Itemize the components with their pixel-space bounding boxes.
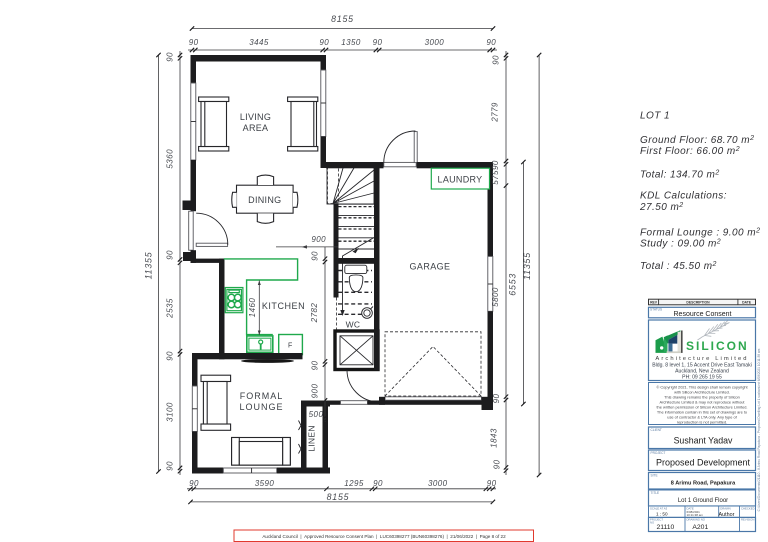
svg-text:Proposed Development: Proposed Development bbox=[656, 458, 751, 468]
svg-text:3100: 3100 bbox=[166, 402, 175, 422]
svg-text:F: F bbox=[288, 342, 292, 349]
svg-text:3000: 3000 bbox=[425, 38, 445, 47]
svg-text:LOUNGE: LOUNGE bbox=[239, 402, 283, 412]
svg-text:90: 90 bbox=[310, 251, 319, 261]
svg-text:10:11:38 am: 10:11:38 am bbox=[687, 513, 704, 517]
svg-text:Resource Consent: Resource Consent bbox=[674, 311, 732, 318]
svg-text:Study : 09.00 m2: Study : 09.00 m2 bbox=[640, 239, 721, 250]
svg-text:27.50 m2: 27.50 m2 bbox=[639, 202, 684, 213]
svg-text:11355: 11355 bbox=[522, 252, 532, 280]
svg-text:8155: 8155 bbox=[327, 492, 350, 502]
svg-text:90: 90 bbox=[311, 361, 320, 371]
svg-text:90: 90 bbox=[166, 250, 175, 260]
svg-text:DRAWING NO: DRAWING NO bbox=[687, 518, 706, 522]
svg-text:KITCHEN: KITCHEN bbox=[262, 301, 305, 311]
svg-text:WC: WC bbox=[346, 320, 361, 330]
svg-text:Total : 45.50 m2: Total : 45.50 m2 bbox=[640, 261, 717, 272]
svg-text:Ground Floor: 68.70 m2: Ground Floor: 68.70 m2 bbox=[640, 135, 754, 146]
svg-text:3445: 3445 bbox=[249, 38, 269, 47]
svg-text:DRAWN: DRAWN bbox=[720, 506, 730, 510]
svg-text:STATUS: STATUS bbox=[650, 308, 662, 312]
svg-text:LINEN: LINEN bbox=[307, 425, 317, 452]
svg-text:LAUNDRY: LAUNDRY bbox=[438, 175, 483, 185]
svg-text:First Floor: 66.00 m2: First Floor: 66.00 m2 bbox=[640, 146, 740, 157]
svg-text:KDL Calculations:: KDL Calculations: bbox=[640, 191, 727, 202]
svg-text:5800: 5800 bbox=[491, 287, 500, 307]
svg-text:90: 90 bbox=[319, 38, 329, 47]
svg-text:CLIENT: CLIENT bbox=[651, 428, 662, 432]
svg-text:90: 90 bbox=[166, 351, 175, 361]
svg-text:8 Arimu Road, Papakura: 8 Arimu Road, Papakura bbox=[671, 481, 736, 487]
svg-text:GARAGE: GARAGE bbox=[410, 262, 451, 272]
svg-text:DATE: DATE bbox=[742, 300, 752, 304]
svg-text:500: 500 bbox=[309, 410, 324, 419]
svg-text:90: 90 bbox=[189, 479, 199, 488]
svg-text:FORMAL: FORMAL bbox=[240, 391, 284, 401]
svg-text:3000: 3000 bbox=[428, 479, 448, 488]
svg-text:90: 90 bbox=[166, 52, 175, 62]
svg-text:90: 90 bbox=[492, 394, 501, 404]
svg-text:2535: 2535 bbox=[166, 298, 175, 319]
svg-text:LIVING: LIVING bbox=[240, 112, 271, 122]
svg-text:90: 90 bbox=[493, 460, 502, 470]
svg-text:C:\Users\Documents\21110 - 8 A: C:\Users\Documents\21110 - 8 Arimu Road … bbox=[757, 348, 761, 511]
svg-text:LOT 1: LOT 1 bbox=[640, 111, 670, 122]
svg-text:90: 90 bbox=[189, 38, 199, 47]
svg-text:900: 900 bbox=[311, 235, 326, 244]
svg-text:3590: 3590 bbox=[255, 479, 275, 488]
svg-text:Lot 1 Ground Floor: Lot 1 Ground Floor bbox=[678, 498, 728, 504]
svg-text:PROJECT: PROJECT bbox=[651, 451, 666, 455]
svg-text:Sushant Yadav: Sushant Yadav bbox=[674, 436, 733, 446]
svg-text:Total: 134.70 m2: Total: 134.70 m2 bbox=[640, 169, 720, 180]
svg-text:Formal Lounge : 9.00 m2: Formal Lounge : 9.00 m2 bbox=[640, 228, 760, 239]
svg-text:90: 90 bbox=[166, 461, 175, 471]
svg-text:900: 900 bbox=[311, 384, 320, 399]
svg-text:SCALE AT A3: SCALE AT A3 bbox=[650, 506, 668, 510]
svg-text:90: 90 bbox=[373, 479, 383, 488]
svg-text:1 : 50: 1 : 50 bbox=[656, 511, 668, 516]
svg-text:AREA: AREA bbox=[243, 123, 269, 133]
svg-text:90: 90 bbox=[487, 479, 497, 488]
svg-text:TITLE: TITLE bbox=[651, 491, 660, 495]
svg-text:1295: 1295 bbox=[344, 479, 364, 488]
svg-text:REV: REV bbox=[650, 300, 658, 304]
svg-text:CHECKED: CHECKED bbox=[741, 506, 755, 510]
svg-text:8155: 8155 bbox=[331, 14, 354, 24]
svg-text:DINING: DINING bbox=[248, 195, 281, 205]
svg-text:21110: 21110 bbox=[656, 524, 674, 531]
svg-text:reproduction is not permitted.: reproduction is not permitted. bbox=[677, 420, 727, 425]
svg-text:90: 90 bbox=[486, 38, 496, 47]
svg-text:Auckland Council | Approved: Auckland Council | Approved Resource Con… bbox=[262, 534, 506, 539]
svg-text:2782: 2782 bbox=[310, 303, 319, 324]
svg-text:1843: 1843 bbox=[490, 428, 499, 448]
svg-text:SITE: SITE bbox=[651, 474, 658, 478]
svg-text:6553: 6553 bbox=[508, 273, 518, 296]
svg-text:SILICON: SILICON bbox=[686, 339, 749, 353]
svg-text:1350: 1350 bbox=[341, 38, 361, 47]
svg-text:1460: 1460 bbox=[248, 298, 257, 318]
svg-text:DESCRIPTION: DESCRIPTION bbox=[686, 300, 710, 304]
svg-text:A201: A201 bbox=[692, 524, 708, 531]
svg-text:PH: 09 265 19 55: PH: 09 265 19 55 bbox=[682, 374, 722, 380]
svg-text:90: 90 bbox=[373, 38, 383, 47]
svg-text:57590: 57590 bbox=[491, 160, 500, 185]
svg-text:11355: 11355 bbox=[143, 252, 153, 280]
svg-text:Architecture Limited: Architecture Limited bbox=[655, 356, 748, 362]
svg-text:5360: 5360 bbox=[166, 149, 175, 169]
svg-text:2779: 2779 bbox=[490, 102, 499, 123]
svg-text:90: 90 bbox=[492, 55, 501, 65]
svg-text:REVISION: REVISION bbox=[741, 518, 754, 522]
